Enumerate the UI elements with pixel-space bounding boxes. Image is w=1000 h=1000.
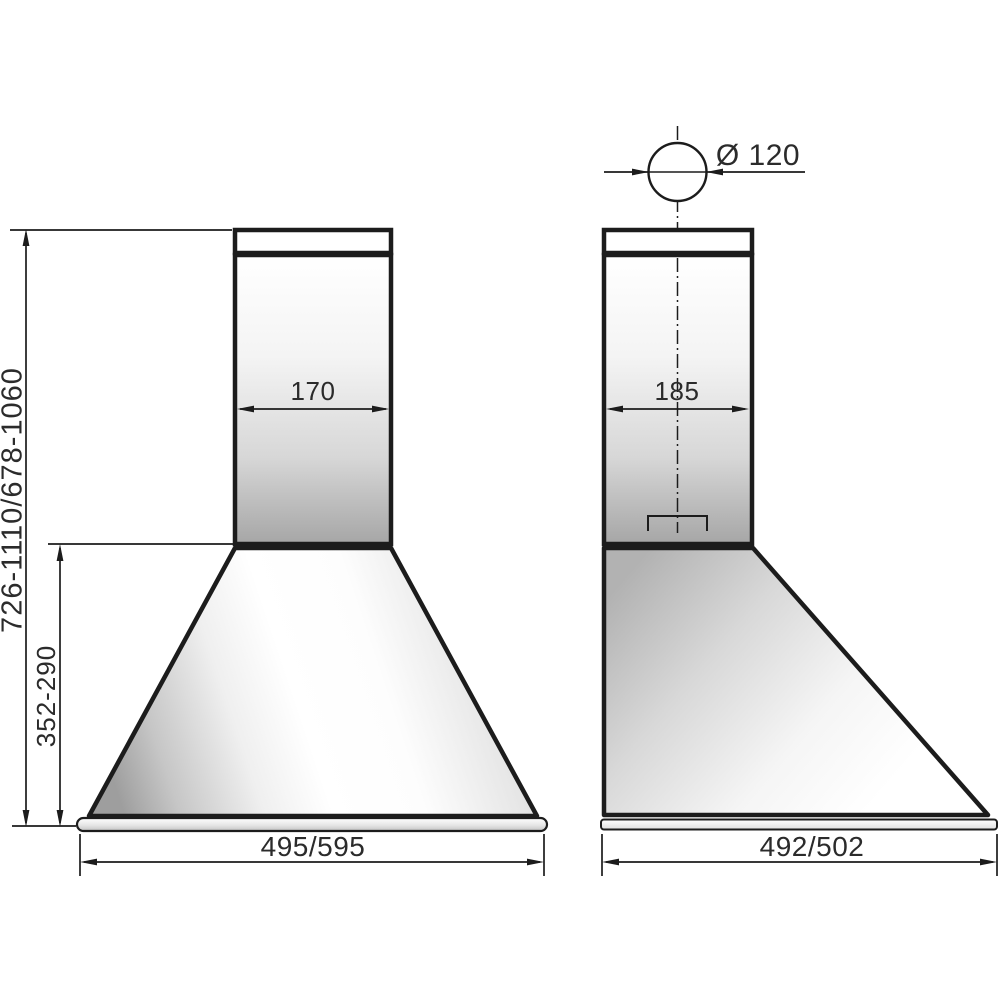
cooker-hood-dimension-drawing: 170 185 Ø 120 726-1110/678-1060 352-290 … xyxy=(0,0,1000,1000)
front-base-lip xyxy=(77,818,547,831)
side-canopy-profile xyxy=(604,548,988,815)
arrow-up-icon xyxy=(23,229,30,246)
arrow-right-icon xyxy=(527,859,544,866)
duct-width-label: 170 xyxy=(291,378,336,404)
side-base-plate xyxy=(601,820,997,830)
arrow-up-icon xyxy=(57,544,64,561)
duct-diameter-label: Ø 120 xyxy=(716,141,800,171)
arrow-left-icon xyxy=(80,859,97,866)
duct-depth-label: 185 xyxy=(655,378,700,404)
arrow-right-icon xyxy=(980,859,997,866)
arrow-left-icon xyxy=(602,859,619,866)
front-chimney-collar xyxy=(235,230,391,253)
overall-height-label: 726-1110/678-1060 xyxy=(0,367,28,633)
front-width-label: 495/595 xyxy=(261,833,366,861)
front-canopy-cone xyxy=(89,548,537,816)
side-depth-label: 492/502 xyxy=(760,833,865,861)
arrow-down-icon xyxy=(57,810,64,827)
arrow-right-icon xyxy=(632,169,649,176)
side-chimney-collar xyxy=(604,230,752,253)
canopy-height-label: 352-290 xyxy=(33,645,59,747)
arrow-down-icon xyxy=(23,810,30,827)
